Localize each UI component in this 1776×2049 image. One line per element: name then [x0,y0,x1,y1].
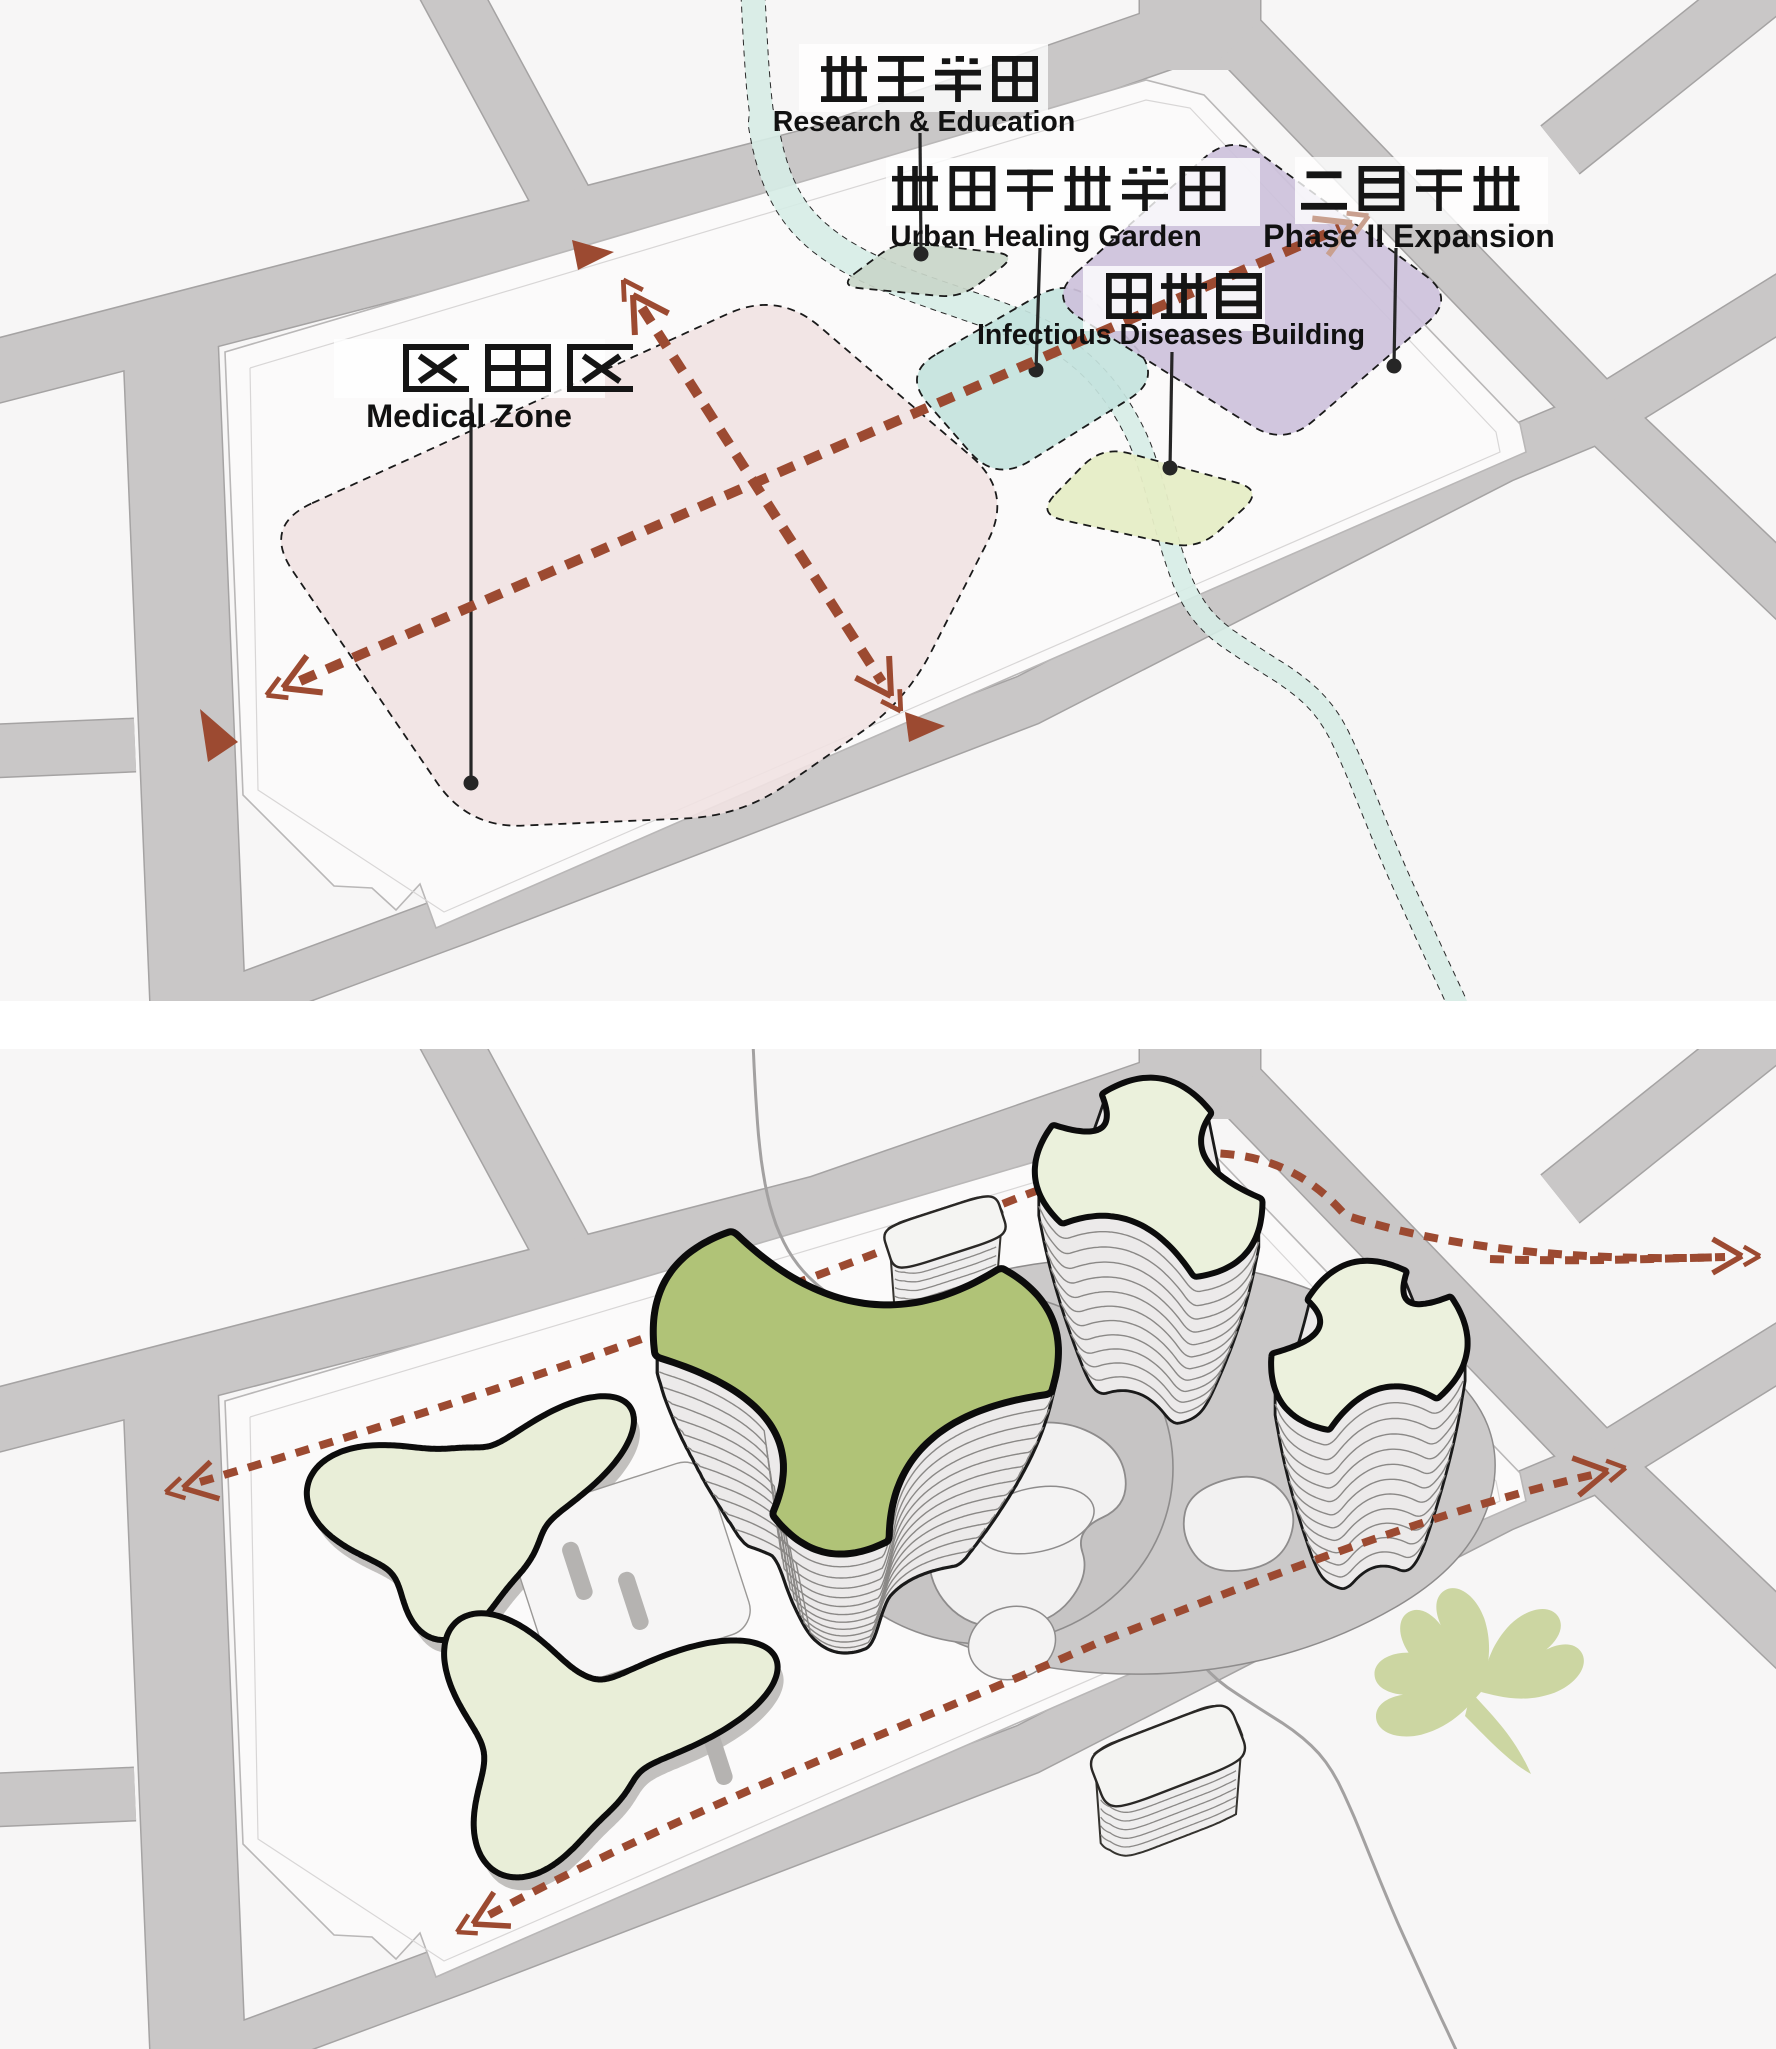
svg-text:Research & Education: Research & Education [773,106,1076,138]
svg-text:Phase II Expansion: Phase II Expansion [1263,218,1555,254]
svg-text:Medical Zone: Medical Zone [366,398,572,434]
svg-text:Urban Healing Garden: Urban Healing Garden [890,220,1201,253]
svg-text:Infectious Diseases Building: Infectious Diseases Building [977,319,1365,351]
